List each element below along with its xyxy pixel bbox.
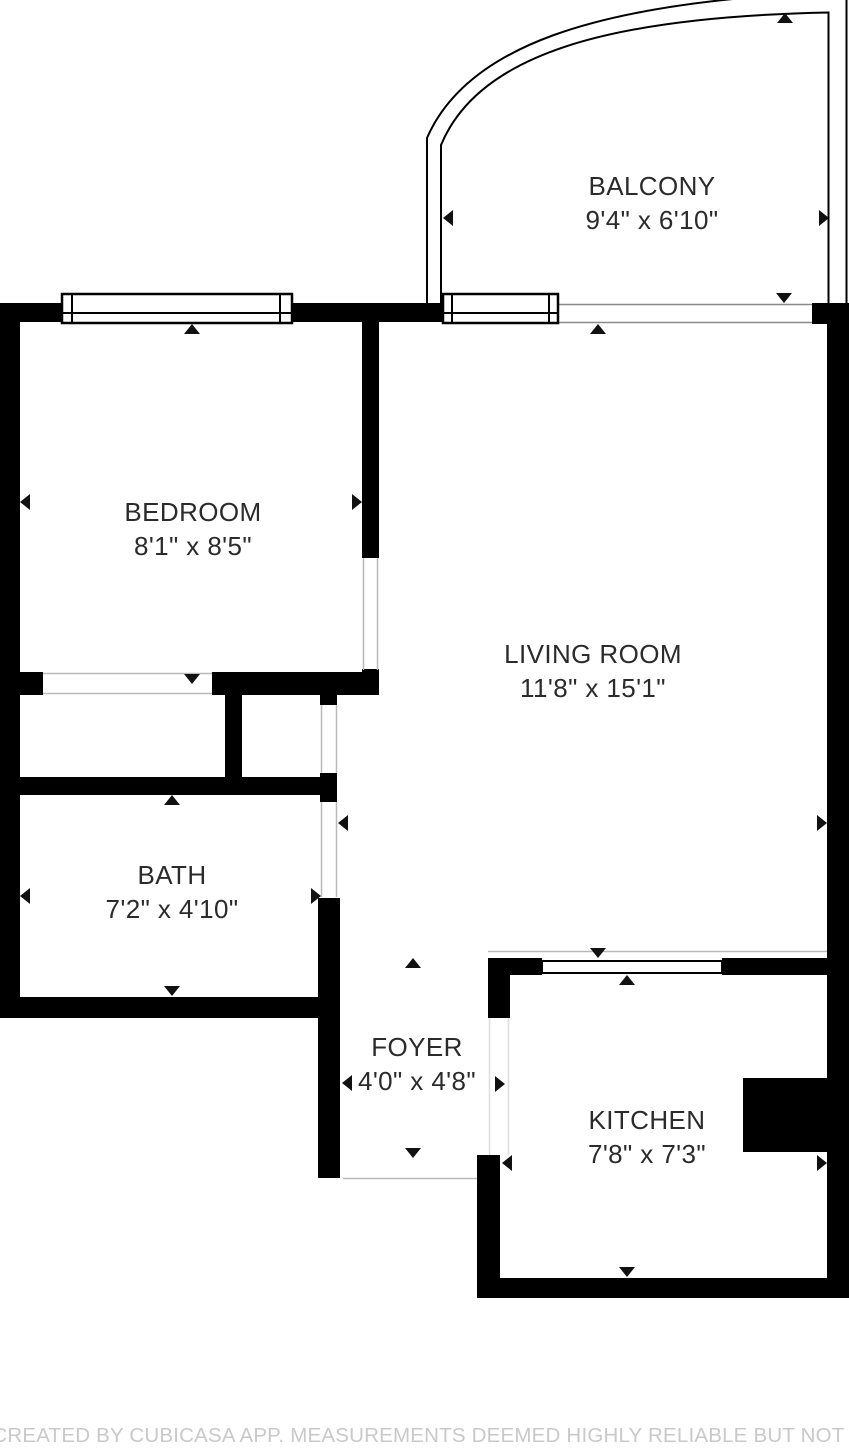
- wall-kitchen-left-lower: [477, 1155, 500, 1298]
- wall-kitchen-top-right: [722, 958, 827, 975]
- balcony-railing-outer: [427, 0, 795, 306]
- foyer-arrow-down-icon: [405, 1148, 421, 1158]
- kitchen-arrow-down-icon: [619, 1267, 635, 1277]
- bath-arrow-down-icon: [164, 986, 180, 996]
- kitchen-arrow-right-icon: [817, 1155, 827, 1171]
- balcony-arrow-down-icon: [776, 293, 792, 303]
- foyer-arrow-left-icon: [342, 1075, 352, 1091]
- bedroom-arrow-down-icon: [184, 674, 200, 684]
- foyer-arrow-right-icon: [495, 1076, 505, 1092]
- room-dims: 4'0" x 4'8": [358, 1064, 476, 1098]
- room-label-living-room: LIVING ROOM 11'8" x 15'1": [504, 637, 682, 705]
- room-dims: 8'1" x 8'5": [124, 529, 261, 563]
- foyer-arrow-up-icon: [405, 958, 421, 968]
- footer-disclaimer: FLOOR PLAN CREATED BY CUBICASA APP. MEAS…: [0, 1424, 849, 1448]
- room-label-bath: BATH 7'2" x 4'10": [106, 858, 239, 926]
- kitchen-arrow-left-icon: [502, 1155, 512, 1171]
- wall-bedroom-bottom-left: [0, 672, 43, 695]
- wall-bedroom-bottom-corner: [362, 669, 379, 695]
- room-dims: 7'8" x 7'3": [588, 1137, 706, 1171]
- living-room-window: [443, 294, 558, 323]
- bedroom-arrow-left-icon: [20, 494, 30, 510]
- room-name: BATH: [106, 858, 239, 892]
- balcony-railing: [427, 0, 847, 306]
- wall-closet: [225, 695, 242, 778]
- wall-left-exterior: [0, 303, 20, 1018]
- kitchen-arrow-up-icon: [619, 975, 635, 985]
- wall-kitchen-shaft: [743, 1078, 849, 1152]
- bedroom-arrow-right-icon: [352, 494, 362, 510]
- wall-bath-top: [0, 777, 320, 795]
- room-name: KITCHEN: [588, 1103, 706, 1137]
- wall-kitchen-bottom: [477, 1278, 849, 1298]
- room-name: LIVING ROOM: [504, 637, 682, 671]
- room-dims: 11'8" x 15'1": [504, 671, 682, 705]
- balcony-arrow-left-icon: [443, 210, 453, 226]
- room-dims: 9'4" x 6'10": [586, 203, 719, 237]
- kitchen-window: [542, 961, 722, 973]
- bath-arrow-left-icon: [20, 888, 30, 904]
- balcony-railing-inner: [441, 13, 829, 307]
- room-label-balcony: BALCONY 9'4" x 6'10": [586, 169, 719, 237]
- floor-plan: BALCONY 9'4" x 6'10" BEDROOM 8'1" x 8'5"…: [0, 0, 849, 1451]
- living-room-arrow-right-icon: [817, 815, 827, 831]
- bath-arrow-up-icon: [164, 795, 180, 805]
- room-dims: 7'2" x 4'10": [106, 892, 239, 926]
- wall-bath-right-foyer-left: [318, 898, 340, 1178]
- wall-top-right-corner: [812, 303, 849, 324]
- room-label-kitchen: KITCHEN 7'8" x 7'3": [588, 1103, 706, 1171]
- bedroom-window: [62, 294, 292, 323]
- room-name: FOYER: [358, 1030, 476, 1064]
- wall-bath-top-post: [320, 773, 337, 802]
- floor-plan-drawing: [0, 0, 849, 1451]
- wall-bedroom-right: [362, 303, 379, 558]
- wall-bedroom-bottom-right: [212, 672, 379, 695]
- wall-bath-bottom: [0, 997, 340, 1018]
- walls: [0, 303, 849, 1298]
- wall-hall-notch: [320, 695, 337, 705]
- room-label-foyer: FOYER 4'0" x 4'8": [358, 1030, 476, 1098]
- room-name: BEDROOM: [124, 495, 261, 529]
- wall-kitchen-left-upper: [488, 958, 510, 1018]
- living-room-arrow-up-icon: [590, 324, 606, 334]
- living-room-arrow-left-icon: [338, 815, 348, 831]
- living-room-arrow-down-icon: [590, 948, 606, 958]
- room-label-bedroom: BEDROOM 8'1" x 8'5": [124, 495, 261, 563]
- room-name: BALCONY: [586, 169, 719, 203]
- bedroom-arrow-up-icon: [184, 324, 200, 334]
